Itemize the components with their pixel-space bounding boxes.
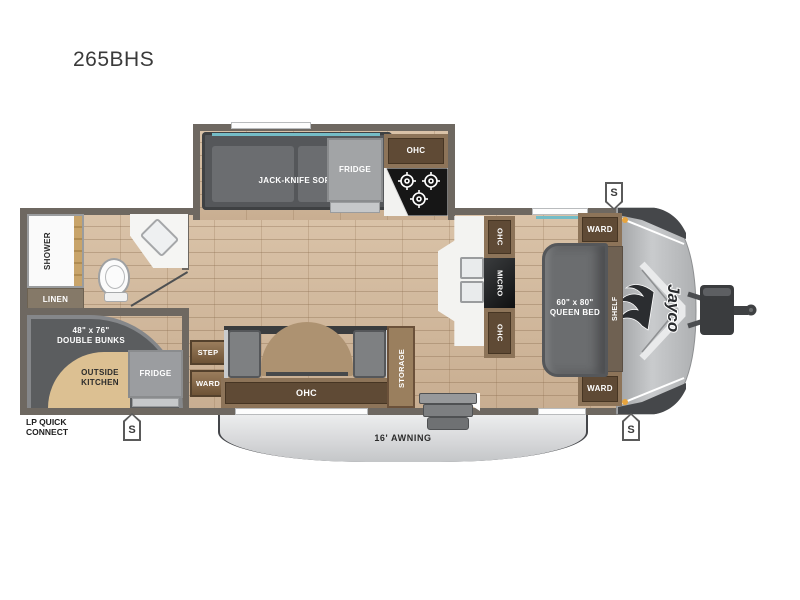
bottom-window-right <box>538 408 586 415</box>
entry-step-1 <box>419 393 477 404</box>
ward-bed-top-label: WARD <box>587 225 613 235</box>
ohc-kitchen-cabinet: OHC <box>384 134 448 168</box>
microwave: MICRO <box>484 258 515 308</box>
speaker-marker-left: S <box>123 413 141 441</box>
microwave-label: MICRO <box>495 270 505 297</box>
step-label: STEP <box>198 348 219 358</box>
fridge-outside-label: FRIDGE <box>139 369 171 379</box>
fridge-main-label: FRIDGE <box>339 165 371 175</box>
entry-step-2 <box>423 404 473 417</box>
outside-fridge-vent <box>132 398 179 407</box>
bunks-size: 48" x 76" <box>36 326 146 336</box>
ward-bed-bottom-label: WARD <box>587 384 613 394</box>
bedroom-window-accent <box>536 216 584 219</box>
speaker-marker-right: S <box>622 413 640 441</box>
outside-kitchen-line2: KITCHEN <box>70 378 130 388</box>
shelf-label: SHELF <box>611 256 621 362</box>
bunks-label: 48" x 76" DOUBLE BUNKS <box>36 326 146 346</box>
kitchen-sink-basin-2 <box>460 281 484 303</box>
marker-dot-top <box>622 217 628 223</box>
ward-hall-label: WARD <box>196 379 220 389</box>
bed-label: 60" x 80" QUEEN BED <box>545 298 605 318</box>
storage-label: STORAGE <box>397 336 407 400</box>
awning: 16' AWNING <box>218 415 588 462</box>
sofa-cushion-left <box>212 146 294 202</box>
queen-bed: 60" x 80" QUEEN BED <box>542 243 608 377</box>
toilet-base <box>104 292 128 302</box>
model-title: 265BHS <box>73 48 154 72</box>
bed-shelf: SHELF <box>607 246 623 372</box>
jayco-logo: Jayco <box>664 284 683 332</box>
step-cabinet: STEP <box>190 340 226 365</box>
bunks-text: DOUBLE BUNKS <box>36 336 146 346</box>
floorplan-265bhs: 265BHS 16' AWNING JACK-KNIFE SOFA FRIDGE… <box>0 0 800 600</box>
sofa-window-accent <box>212 133 380 136</box>
ohc-dinette-cabinet: OHC <box>221 378 392 408</box>
ohc-upper-label: OHC <box>495 228 505 246</box>
bottom-window-left <box>235 408 368 415</box>
fridge-main: FRIDGE <box>327 138 383 202</box>
speaker-marker-top: S <box>605 182 623 210</box>
bunkroom-wall <box>182 308 189 415</box>
ward-bed-bottom: WARD <box>578 372 622 406</box>
ohc-dinette-label: OHC <box>296 388 317 398</box>
ohc-upper-cabinet: OHC <box>484 216 515 258</box>
bed-text: QUEEN BED <box>545 308 605 318</box>
fridge-outside: FRIDGE <box>128 350 183 398</box>
lp-quick-connect-label: LP QUICK CONNECT <box>26 417 68 437</box>
ohc-lower-cabinet: OHC <box>484 308 515 358</box>
shower-label: SHOWER <box>43 224 53 278</box>
dinette-seat-right <box>353 330 386 378</box>
ohc-lower-label: OHC <box>495 324 505 342</box>
slideout-window <box>231 122 311 129</box>
ohc-kitchen-label: OHC <box>407 146 426 156</box>
dinette-table-edge <box>266 372 348 376</box>
shower-door <box>74 216 82 286</box>
marker-dot-bottom <box>622 399 628 405</box>
hitch-assembly <box>684 282 760 340</box>
toilet-icon <box>98 258 130 296</box>
dinette-seat-left <box>228 330 261 378</box>
lp-line1: LP QUICK <box>26 417 68 427</box>
kitchen-sink-basin-1 <box>460 257 484 279</box>
cooktop-icon <box>384 168 448 216</box>
toilet-bowl <box>105 265 125 289</box>
storage-cabinet: STORAGE <box>387 326 415 408</box>
fridge-vent <box>330 202 380 213</box>
shower: SHOWER <box>27 214 84 288</box>
linen-label: LINEN <box>43 295 69 305</box>
lp-line2: CONNECT <box>26 427 68 437</box>
bed-size: 60" x 80" <box>545 298 605 308</box>
awning-label: 16' AWNING <box>220 433 586 443</box>
outside-kitchen-label: OUTSIDE KITCHEN <box>70 368 130 388</box>
outside-kitchen-line1: OUTSIDE <box>70 368 130 378</box>
ward-bed-top: WARD <box>578 213 622 246</box>
entry-step-3 <box>427 417 469 430</box>
